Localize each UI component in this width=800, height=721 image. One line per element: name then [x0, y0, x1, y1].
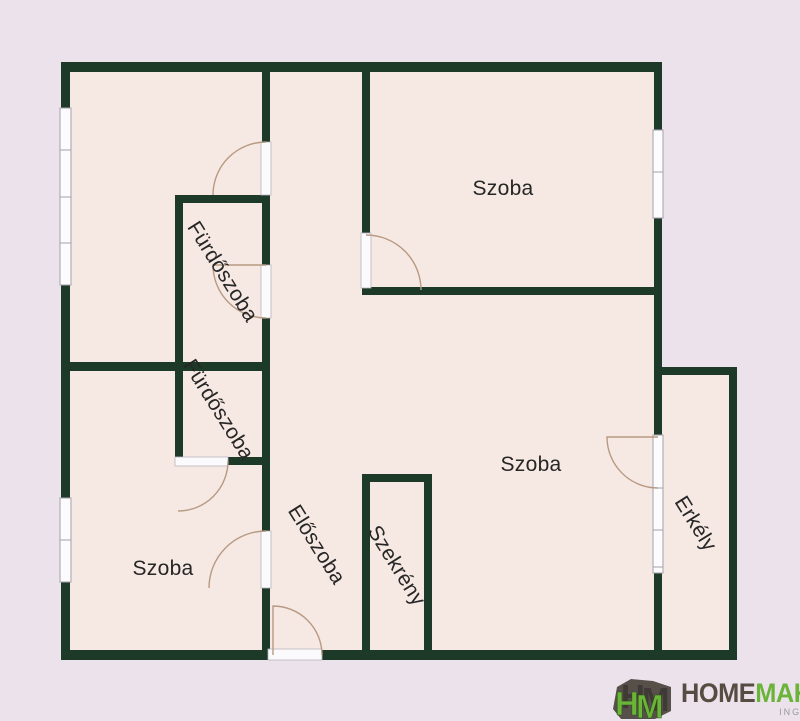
balcony-door-window	[653, 435, 663, 573]
wall-segment	[61, 362, 270, 371]
wall-segment	[61, 650, 270, 660]
wall-segment	[262, 72, 270, 142]
door-opening	[261, 265, 271, 318]
closet-wall	[424, 474, 432, 652]
wall-segment	[262, 318, 270, 531]
wall-segment	[262, 588, 270, 650]
door-opening	[361, 233, 371, 288]
door-opening	[175, 457, 228, 466]
room-label-szoba-bottom-right: Szoba	[500, 453, 561, 477]
brand-tagline: INGATLANOK	[779, 707, 800, 717]
brand-wordmark: HOMEMAKER	[681, 680, 800, 706]
wall-segment	[61, 582, 70, 660]
wall-segment	[654, 573, 662, 650]
room-label-szoba-bottom-left: Szoba	[132, 557, 193, 581]
wall-segment	[61, 62, 662, 72]
door-opening	[261, 531, 271, 588]
wall-segment	[61, 285, 70, 498]
floorplan-drawing	[0, 0, 800, 721]
balcony-wall	[729, 367, 737, 650]
balcony-wall	[662, 367, 737, 375]
homemaker-cubes-icon: H M H M	[609, 675, 677, 721]
floorplan: Szoba Szoba Szoba Fürdőszoba Fürdőszoba …	[0, 0, 800, 721]
wall-segment	[262, 195, 270, 265]
window	[653, 130, 663, 218]
bathroom-wall	[175, 195, 270, 203]
brand-home-text: HOME	[681, 678, 755, 708]
door-opening	[261, 142, 271, 195]
wall-segment	[322, 650, 737, 660]
closet-wall	[362, 474, 370, 652]
wall-segment	[362, 72, 370, 233]
brand-maker-text: MAKER	[755, 678, 800, 708]
wall-segment	[61, 72, 70, 108]
wall-segment	[362, 287, 654, 295]
icon-letter-m: M	[636, 688, 664, 721]
entrance-door-opening	[268, 649, 322, 660]
wall-segment	[654, 62, 662, 130]
bathroom-wall	[175, 195, 183, 465]
closet-wall	[362, 474, 432, 482]
room-label-szoba-top-right: Szoba	[472, 177, 533, 201]
wall-segment	[654, 218, 662, 435]
homemaker-logo: H M H M HOMEMAKER INGATLANOK	[609, 675, 800, 721]
